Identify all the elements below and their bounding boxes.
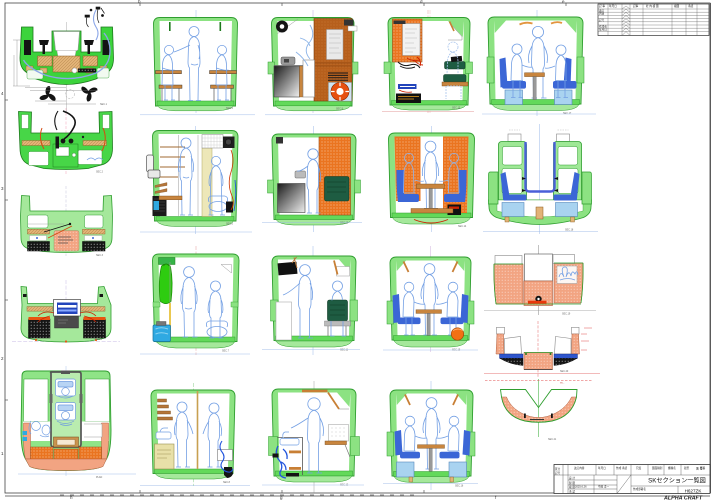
svg-text:内容: 内容 bbox=[599, 12, 605, 16]
svg-text:SEC.2: SEC.2 bbox=[96, 171, 104, 174]
svg-text:作成部署名: 作成部署名 bbox=[633, 487, 646, 491]
svg-text:SEC.5: SEC.5 bbox=[226, 107, 234, 110]
svg-text:SEC.6: SEC.6 bbox=[226, 223, 234, 226]
svg-text:中尾 洋一: 中尾 洋一 bbox=[598, 485, 610, 489]
svg-text:SEC.16: SEC.16 bbox=[455, 485, 464, 488]
svg-text:改訂内容: 改訂内容 bbox=[574, 466, 585, 470]
svg-text:尺度: 尺度 bbox=[636, 466, 642, 470]
svg-text:区分: 区分 bbox=[555, 467, 561, 471]
svg-text:W.L.: W.L. bbox=[560, 383, 565, 385]
svg-text:SEC.11: SEC.11 bbox=[340, 349, 349, 352]
svg-text:機種名: 機種名 bbox=[668, 466, 676, 470]
svg-text:記 事: 記 事 bbox=[599, 4, 605, 8]
svg-text:検図: 検図 bbox=[674, 4, 680, 8]
svg-text:船型: 船型 bbox=[684, 466, 690, 470]
svg-text:SEC.19: SEC.19 bbox=[562, 313, 571, 316]
svg-text:SEC.13: SEC.13 bbox=[452, 107, 461, 110]
svg-text:SEC.20: SEC.20 bbox=[560, 370, 569, 373]
svg-text:SEC.21: SEC.21 bbox=[548, 438, 557, 441]
svg-text:図面種別: 図面種別 bbox=[652, 466, 663, 470]
svg-text:社 内 検 図: 社 内 検 図 bbox=[646, 4, 659, 8]
svg-text:SEC.7: SEC.7 bbox=[222, 350, 230, 353]
svg-text:SKセクション一覧図: SKセクション一覧図 bbox=[648, 477, 706, 485]
svg-text:SEC.17: SEC.17 bbox=[563, 112, 572, 115]
svg-text:2025.6.26: 2025.6.26 bbox=[575, 485, 587, 489]
svg-text:年月日: 年月日 bbox=[598, 466, 606, 470]
svg-text:SEC.4: SEC.4 bbox=[95, 338, 103, 341]
svg-text:SEC.10: SEC.10 bbox=[340, 222, 349, 225]
svg-text:SEC.1: SEC.1 bbox=[100, 103, 108, 106]
svg-text:PLAN: PLAN bbox=[96, 476, 103, 479]
svg-text:H627ZK: H627ZK bbox=[685, 488, 703, 493]
svg-text:年月日: 年月日 bbox=[609, 4, 617, 8]
svg-text:記号: 記号 bbox=[555, 471, 561, 475]
svg-text:製 図: 製 図 bbox=[569, 481, 575, 485]
svg-text:SEC.3: SEC.3 bbox=[96, 254, 104, 257]
svg-text:設 計: 設 計 bbox=[569, 476, 575, 480]
svg-text:SEC.18: SEC.18 bbox=[565, 229, 574, 232]
svg-text:作成 承認: 作成 承認 bbox=[616, 466, 628, 470]
svg-text:記号: 記号 bbox=[599, 18, 605, 22]
svg-text:番 号: 番 号 bbox=[696, 467, 703, 471]
svg-text:ALPHA CRAFT: ALPHA CRAFT bbox=[663, 495, 703, 500]
svg-text:承 認: 承 認 bbox=[569, 490, 575, 494]
svg-text:SEC.8: SEC.8 bbox=[223, 481, 231, 484]
svg-text:記事: 記事 bbox=[633, 4, 639, 8]
svg-text:承認: 承認 bbox=[688, 4, 694, 8]
svg-text:SEC.14: SEC.14 bbox=[458, 225, 467, 228]
svg-text:SEC.9: SEC.9 bbox=[336, 108, 344, 111]
svg-text:年月日: 年月日 bbox=[599, 28, 607, 32]
